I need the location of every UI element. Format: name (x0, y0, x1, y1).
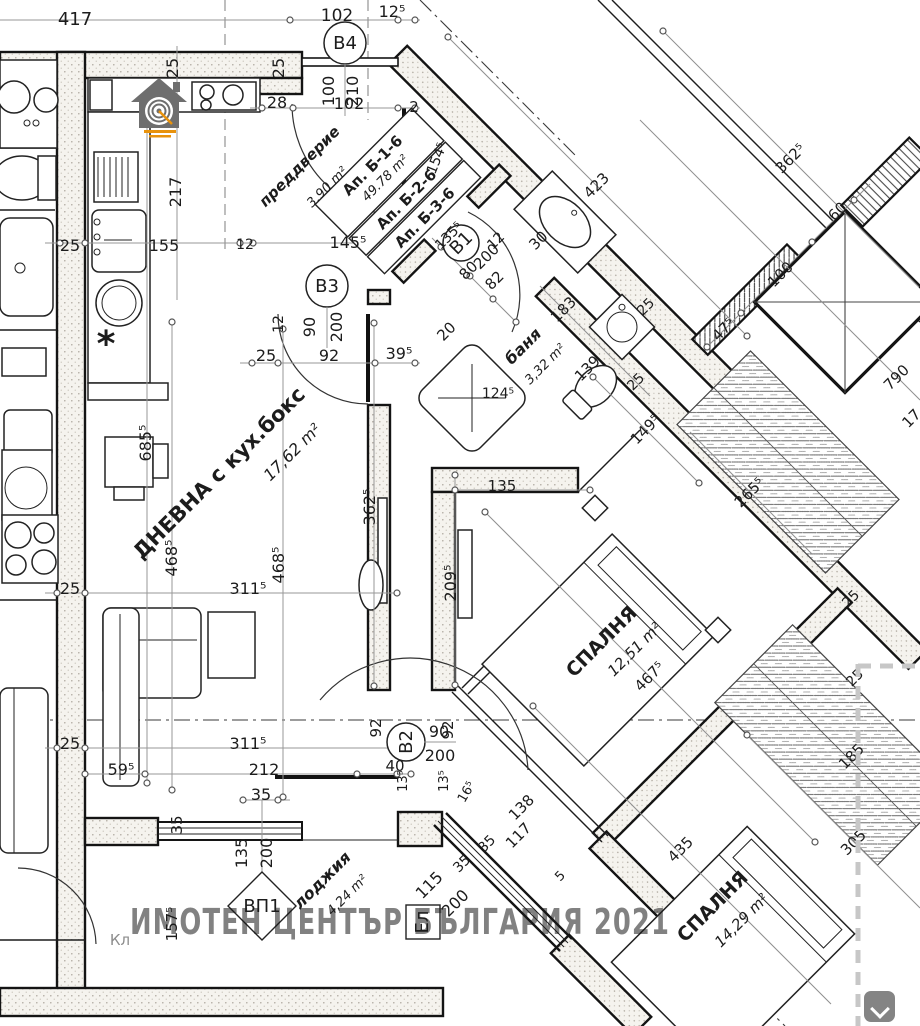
door-tag-b3-id: B3 (315, 276, 339, 297)
dimension-label: 82 (481, 267, 507, 293)
window-vp1-height: 200 (257, 838, 276, 869)
dimension-label: 25 (60, 236, 80, 255)
dimension-label: 13⁵ (437, 770, 452, 792)
dimension-label: 102 (321, 6, 353, 26)
wall-topright-hatched (841, 138, 920, 227)
kl-label: Кл (110, 931, 130, 949)
dimension-label: 145⁵ (330, 233, 367, 252)
watermark-text: ИМОТЕН ЦЕНТЪР БЪЛГАРИЯ 2021 (130, 902, 670, 943)
dimension-label: 212 (249, 760, 280, 779)
dimension-label: 217 (166, 177, 185, 208)
dimension-label: 117 (502, 819, 535, 852)
dimension-label: 417 (58, 9, 92, 30)
dimension-label: 25 (163, 58, 182, 78)
door-tag-b4-id: B4 (333, 33, 357, 54)
dimension-label: 25 (269, 58, 288, 78)
dimension-label: 20 (433, 318, 459, 344)
dimension-label: 468⁵ (162, 540, 181, 577)
dimension-label: 17 (898, 405, 920, 431)
dimension-label: 92 (319, 346, 339, 365)
dimension-label: 311⁵ (230, 734, 267, 753)
door-tag-b2-id: B2 (396, 730, 417, 754)
dining-chair-right (153, 444, 168, 478)
dimension-label: 124⁵ (482, 386, 514, 402)
wall-loggia-pier-right (398, 812, 442, 846)
dimension-label: 685⁵ (136, 425, 155, 462)
dimension-label: 25 (60, 579, 80, 598)
kitchen-washer (96, 280, 142, 326)
dimension-label: 155 (149, 236, 180, 255)
kitchen-sink (92, 210, 146, 272)
dimension-label: 12 (236, 237, 254, 253)
wall-jamb-b3 (368, 290, 390, 304)
neighbor-sofa (0, 688, 48, 853)
dimension-label: 12⁵ (379, 2, 406, 21)
loggia-window-width: 115 (412, 868, 447, 903)
door-b2-height: 200 (425, 746, 456, 765)
dimension-label: 790 (880, 361, 913, 394)
door-b3-width: 90 (300, 317, 319, 337)
chevron-down-icon (870, 999, 890, 1019)
coffee-table (208, 612, 255, 678)
dimension-label: 311⁵ (230, 579, 267, 598)
dimension-label: 35 (251, 785, 271, 804)
dimension-label: 25 (256, 346, 276, 365)
dimension-label: 35 (450, 852, 474, 876)
neighbor-microwave (2, 348, 46, 376)
dimension-label: 12 (271, 315, 287, 333)
dimension-label: 209⁵ (441, 565, 460, 602)
dimension-label: 362⁵ (360, 489, 379, 526)
wall-top-step (255, 78, 302, 94)
dining-chair-bottom (114, 487, 144, 500)
window-vp1-width: 135 (232, 838, 251, 869)
dimension-label: 92 (367, 718, 385, 737)
dimension-label: 16⁵ (455, 779, 479, 805)
neighbor-washer (2, 450, 52, 520)
wall-loggia-pier-left (85, 818, 158, 845)
nightstand-1 (582, 495, 607, 520)
scroll-down-button[interactable] (864, 991, 895, 1022)
dimension-label: 2 (409, 98, 419, 116)
dimension-label: 25 (60, 734, 80, 753)
dimension-label: 35 (168, 815, 186, 834)
wall-loggia-south (0, 988, 443, 1016)
floor-plan-page: B4 100 210 B3 90 200 B2 90 200 B1 ВП1 (0, 0, 920, 1026)
dimension-label: 59⁵ (108, 760, 135, 779)
dimension-label: 28 (267, 93, 287, 112)
dimension-label: 468⁵ (269, 547, 288, 584)
logo-text-bar-2 (149, 135, 171, 138)
dimension-label: 92 (439, 720, 457, 739)
bedroom1-dresser (458, 530, 472, 618)
dimension-label: 13⁵ (396, 770, 411, 792)
door-b3-height: 200 (327, 312, 346, 343)
dimension-label: 35 (475, 832, 499, 856)
dimension-label: 39⁵ (386, 344, 413, 363)
dimension-label: 102 (334, 94, 365, 113)
asterisk-mark: * (97, 324, 116, 365)
wall-party (57, 52, 85, 996)
floor-plan-drawing: B4 100 210 B3 90 200 B2 90 200 B1 ВП1 (0, 0, 920, 1026)
kitchen-bar (88, 383, 168, 400)
logo-text-bar-1 (144, 130, 176, 133)
dimension-label: 5 (552, 868, 568, 884)
dimension-label: 435 (664, 833, 697, 866)
door-tag-b3: B3 90 200 (300, 265, 348, 348)
neighbor-shower (0, 218, 53, 316)
dimension-label: 135 (488, 477, 517, 495)
